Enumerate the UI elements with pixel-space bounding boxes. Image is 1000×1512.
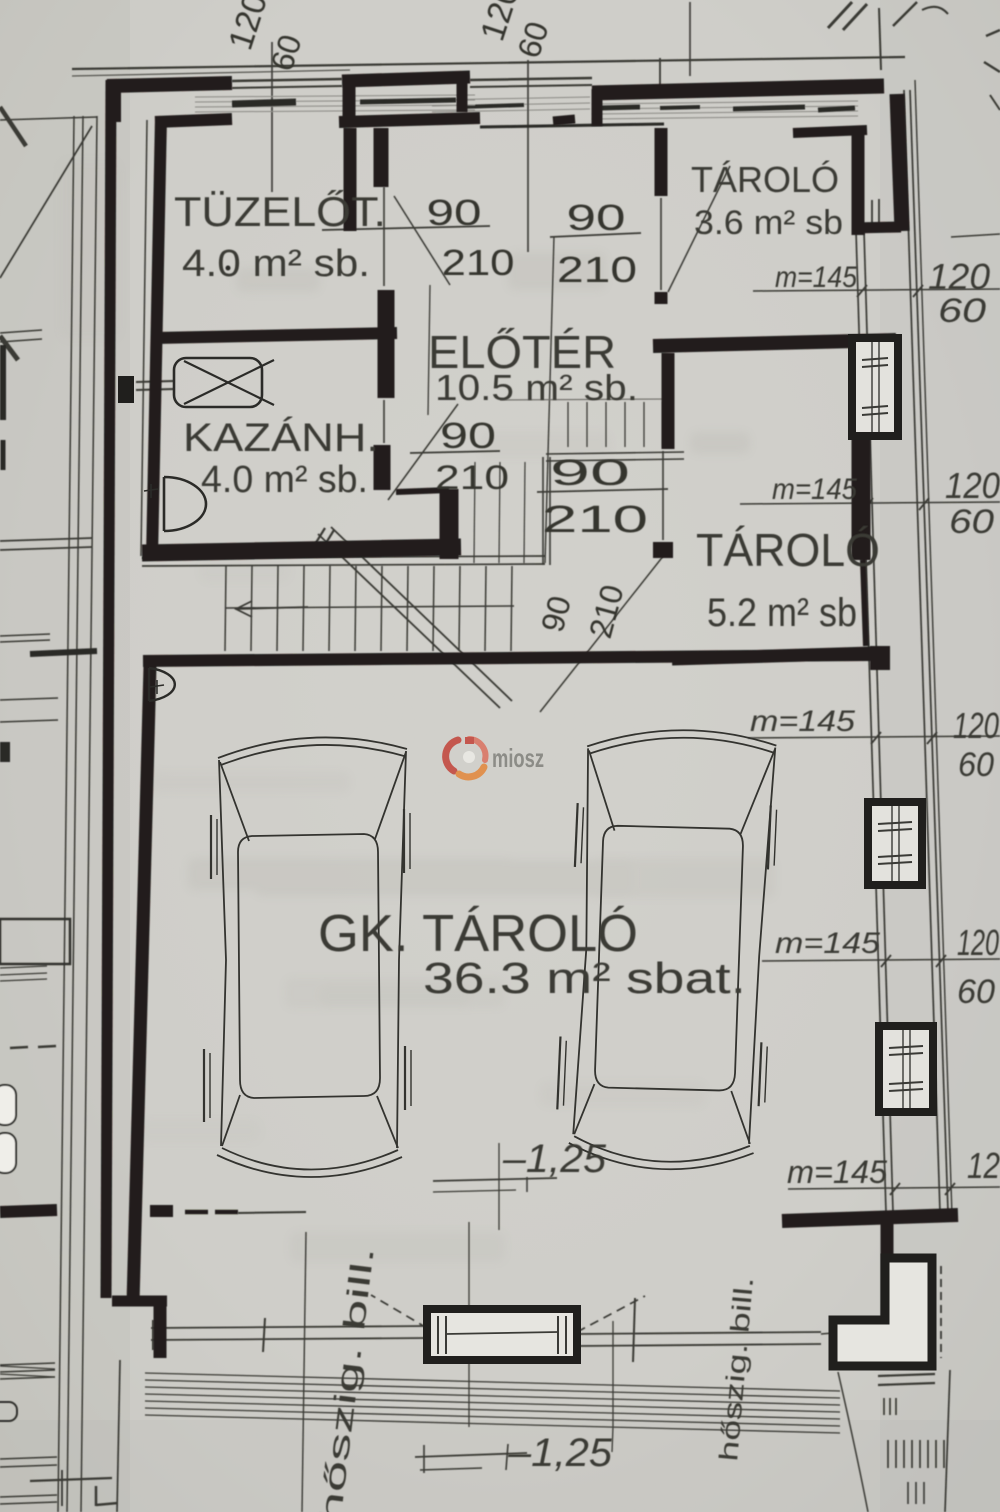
svg-text:36.3 m² sbat.: 36.3 m² sbat. bbox=[423, 954, 746, 1003]
svg-text:TÁROLÓ: TÁROLÓ bbox=[696, 524, 880, 576]
svg-text:5.2 m² sb: 5.2 m² sb bbox=[707, 591, 857, 635]
svg-text:90: 90 bbox=[550, 452, 630, 493]
svg-text:60: 60 bbox=[957, 973, 995, 1011]
svg-text:10.5 m² sb.: 10.5 m² sb. bbox=[435, 367, 638, 408]
svg-text:m=145: m=145 bbox=[775, 927, 880, 960]
svg-text:60: 60 bbox=[958, 746, 994, 784]
svg-text:60: 60 bbox=[938, 292, 986, 330]
svg-text:m=145: m=145 bbox=[772, 473, 857, 506]
svg-text:90: 90 bbox=[427, 192, 482, 233]
svg-text:60: 60 bbox=[949, 503, 994, 541]
svg-text:m=145: m=145 bbox=[750, 705, 855, 738]
svg-text:90: 90 bbox=[440, 415, 496, 456]
svg-text:210: 210 bbox=[442, 242, 515, 283]
svg-text:4.0 m² sb.: 4.0 m² sb. bbox=[201, 459, 368, 501]
svg-text:TÁROLÓ: TÁROLÓ bbox=[691, 159, 839, 200]
svg-text:TÜZELŐT.: TÜZELŐT. bbox=[174, 188, 386, 235]
svg-text:120: 120 bbox=[957, 922, 999, 963]
svg-text:90: 90 bbox=[567, 197, 626, 238]
svg-text:120: 120 bbox=[953, 705, 999, 746]
svg-text:120: 120 bbox=[945, 465, 1000, 506]
svg-text:miosz: miosz bbox=[492, 743, 544, 773]
svg-text:m=145: m=145 bbox=[775, 261, 857, 294]
svg-text:120: 120 bbox=[928, 256, 990, 297]
svg-text:4.0 m² sb.: 4.0 m² sb. bbox=[182, 243, 370, 285]
svg-text:m=145: m=145 bbox=[787, 1154, 887, 1190]
svg-text:210: 210 bbox=[542, 499, 648, 541]
svg-text:3.6 m² sb: 3.6 m² sb bbox=[694, 204, 843, 242]
svg-text:–1,25: –1,25 bbox=[502, 1137, 607, 1181]
svg-text:210: 210 bbox=[557, 249, 637, 290]
svg-text:–1,25: –1,25 bbox=[507, 1431, 613, 1475]
svg-text:210: 210 bbox=[435, 459, 509, 497]
svg-text:12: 12 bbox=[967, 1145, 1000, 1186]
svg-text:KAZÁNH.: KAZÁNH. bbox=[183, 415, 379, 460]
